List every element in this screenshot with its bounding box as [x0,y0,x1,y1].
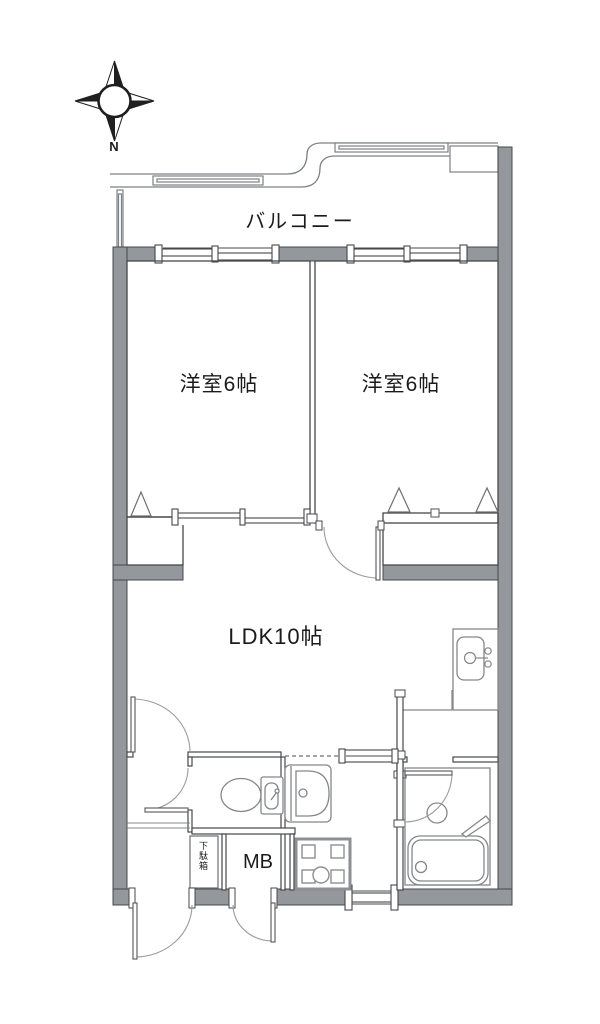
genkan-step-line [127,823,190,828]
washroom-sliding-door [339,749,398,763]
closet-right [383,513,498,565]
wall-end-cap [395,690,405,697]
floor-plan: N バルコニー 洋室6帖 洋室6帖 LDK10帖 MB 下駄箱 [0,0,600,1024]
bath-stool-icon [427,803,447,823]
kitchen-counter [453,629,498,710]
floor-plan-drawing [0,0,600,1024]
balcony-label: バルコニー [210,205,390,234]
faucet-icon [465,648,492,667]
bathtub-icon [408,836,488,885]
balcony-railing [117,143,498,252]
ldk-label: LDK10帖 [176,619,376,651]
wall-end-cap [394,820,405,827]
bedroom-left-label: 洋室6帖 [139,368,299,398]
bathtub-drain-icon [416,862,427,873]
shoe-cabinet-label: 下駄箱 [197,841,210,889]
bedroom-right-label: 洋室6帖 [321,368,481,398]
bathroom-door-swing [405,771,452,822]
closet-right-slab-wall [383,565,498,580]
washing-machine-pan-icon [296,839,350,889]
hall-door-swing [131,697,190,752]
toilet-door-swing [145,768,188,812]
bath-counter-ledge [462,816,490,837]
compass-icon [75,61,154,141]
toilet-icon [221,777,283,814]
bedroom-right-door-swing [316,521,384,580]
closet-left-slab-wall [113,565,183,580]
north-label: N [98,139,130,154]
refrigerator-nook [403,690,452,710]
meter-box-label: MB [228,851,288,874]
vanity-sink-icon [285,765,331,822]
bathroom [405,768,490,885]
